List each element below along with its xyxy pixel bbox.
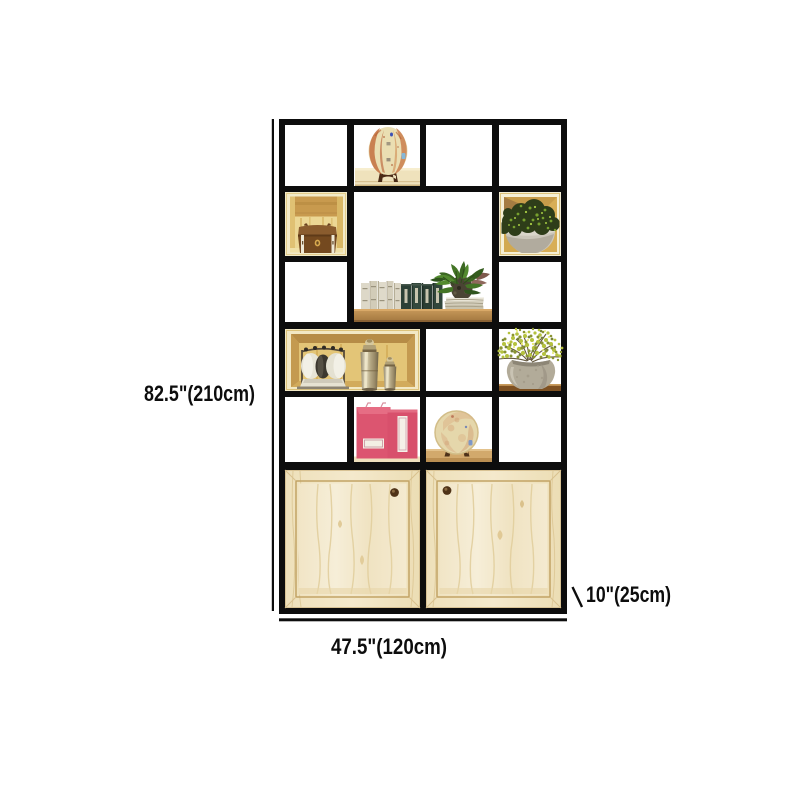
svg-text:82.5"(210cm): 82.5"(210cm) bbox=[144, 381, 255, 406]
svg-text:10"(25cm): 10"(25cm) bbox=[586, 582, 671, 607]
svg-text:47.5"(120cm): 47.5"(120cm) bbox=[331, 634, 447, 659]
